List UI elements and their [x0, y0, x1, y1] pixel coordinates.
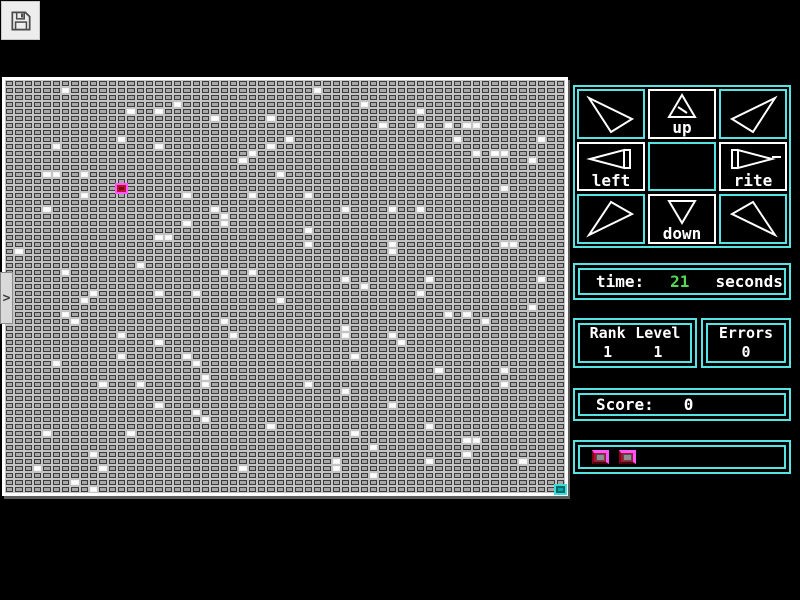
grid-cell [379, 396, 386, 401]
grid-cell [482, 333, 489, 338]
grid-cell [25, 417, 32, 422]
grid-cell [99, 487, 106, 492]
grid-cell [538, 382, 545, 387]
grid-cell [81, 137, 88, 142]
grid-cell [43, 452, 50, 457]
grid-cell [165, 284, 172, 289]
grid-cell [342, 431, 349, 436]
grid-cell [482, 179, 489, 184]
grid-cell [407, 459, 414, 464]
grid-cell [538, 424, 545, 429]
grid-cell [370, 158, 377, 163]
grid-cell [286, 298, 293, 303]
grid-cell [454, 368, 461, 373]
grid-cell [183, 473, 190, 478]
grid-cell [286, 228, 293, 233]
grid-cell [445, 382, 452, 387]
grid-cell [118, 228, 125, 233]
grid-cell [267, 424, 274, 429]
grid-cell [370, 109, 377, 114]
grid-cell [557, 389, 564, 394]
grid-cell [174, 284, 181, 289]
grid-cell [379, 466, 386, 471]
grid-cell [239, 403, 246, 408]
grid-cell [62, 438, 69, 443]
grid-cell [445, 403, 452, 408]
grid-cell [295, 473, 302, 478]
grid-cell [519, 417, 526, 422]
grid-cell [62, 354, 69, 359]
grid-cell [249, 158, 256, 163]
grid-cell [155, 361, 162, 366]
grid-cell [43, 284, 50, 289]
grid-cell [295, 228, 302, 233]
grid-cell [519, 116, 526, 121]
grid-cell [239, 158, 246, 163]
grid-cell [146, 228, 153, 233]
grid-cell [435, 375, 442, 380]
grid-cell [314, 256, 321, 261]
grid-cell [529, 172, 536, 177]
grid-cell [267, 102, 274, 107]
grid-cell [165, 242, 172, 247]
grid-cell [109, 186, 116, 191]
grid-cell [267, 249, 274, 254]
grid-cell [249, 333, 256, 338]
grid-cell [510, 172, 517, 177]
grid-cell [426, 340, 433, 345]
grid-cell [109, 284, 116, 289]
grid-cell [109, 473, 116, 478]
grid-cell [510, 473, 517, 478]
grid-cell [99, 459, 106, 464]
grid-cell [305, 270, 312, 275]
grid-cell [155, 116, 162, 121]
grid-cell [342, 340, 349, 345]
grid-cell [277, 375, 284, 380]
grid-cell [379, 193, 386, 198]
grid-cell [435, 172, 442, 177]
grid-cell [6, 459, 13, 464]
grid-cell [370, 221, 377, 226]
grid-cell [482, 284, 489, 289]
grid-cell [323, 459, 330, 464]
grid-cell [81, 151, 88, 156]
grid-cell [239, 200, 246, 205]
grid-cell [258, 431, 265, 436]
grid-cell [398, 95, 405, 100]
grid-cell [435, 151, 442, 156]
grid-cell [519, 249, 526, 254]
grid-cell [435, 186, 442, 191]
grid-cell [90, 298, 97, 303]
grid-cell [118, 249, 125, 254]
grid-cell [342, 410, 349, 415]
move-down-left-button[interactable] [577, 194, 645, 244]
grid-cell [473, 452, 480, 457]
grid-cell [81, 165, 88, 170]
grid-cell [417, 123, 424, 128]
grid-cell [482, 361, 489, 366]
save-button[interactable] [1, 1, 40, 40]
grid-cell [211, 186, 218, 191]
grid-cell [491, 340, 498, 345]
grid-cell [295, 389, 302, 394]
grid-cell [34, 382, 41, 387]
grid-cell [426, 151, 433, 156]
grid-cell [519, 144, 526, 149]
grid-cell [202, 368, 209, 373]
grid-cell [62, 102, 69, 107]
grid-cell [137, 382, 144, 387]
grid-cell [193, 368, 200, 373]
grid-cell [221, 333, 228, 338]
grid-cell [473, 424, 480, 429]
grid-cell [305, 102, 312, 107]
grid-cell [501, 144, 508, 149]
grid-cell [351, 291, 358, 296]
grid-cell [482, 382, 489, 387]
grid-cell [81, 487, 88, 492]
grid-cell [230, 263, 237, 268]
grid-cell [193, 333, 200, 338]
grid-cell [71, 389, 78, 394]
move-down-button[interactable]: down [648, 194, 716, 244]
grid-cell [361, 389, 368, 394]
grid-cell [370, 200, 377, 205]
grid-cell [165, 312, 172, 317]
grid-cell [15, 158, 22, 163]
grid-cell [547, 88, 554, 93]
grid-cell [239, 130, 246, 135]
grid-cell [417, 340, 424, 345]
grid-cell [127, 424, 134, 429]
grid-cell [342, 221, 349, 226]
grid-cell [323, 221, 330, 226]
grid-cell [258, 473, 265, 478]
grid-cell [71, 200, 78, 205]
grid-cell [286, 382, 293, 387]
grid-cell [333, 186, 340, 191]
grid-cell [249, 305, 256, 310]
grid-cell [370, 298, 377, 303]
grid-cell [53, 158, 60, 163]
grid-cell [81, 228, 88, 233]
grid-cell [435, 326, 442, 331]
grid-cell [277, 186, 284, 191]
grid-cell [519, 333, 526, 338]
grid-cell [25, 361, 32, 366]
grid-cell [6, 438, 13, 443]
grid-cell [417, 354, 424, 359]
grid-cell [193, 291, 200, 296]
grid-cell [323, 165, 330, 170]
grid-cell [211, 116, 218, 121]
grid-cell [547, 389, 554, 394]
grid-cell [165, 130, 172, 135]
grid-cell [239, 165, 246, 170]
grid-cell [445, 284, 452, 289]
grid-cell [557, 361, 564, 366]
grid-cell [557, 298, 564, 303]
grid-cell [491, 263, 498, 268]
grid-cell [258, 396, 265, 401]
game-board[interactable] [5, 80, 565, 493]
grid-cell [211, 235, 218, 240]
grid-cell [43, 445, 50, 450]
move-up-right-button[interactable] [719, 89, 787, 139]
grid-cell [25, 396, 32, 401]
grid-cell [99, 403, 106, 408]
grid-cell [538, 312, 545, 317]
grid-cell [463, 235, 470, 240]
grid-cell [183, 305, 190, 310]
grid-cell [305, 417, 312, 422]
grid-cell [445, 165, 452, 170]
grid-cell [389, 452, 396, 457]
grid-cell [53, 452, 60, 457]
grid-cell [277, 284, 284, 289]
grid-cell [211, 445, 218, 450]
grid-cell [277, 109, 284, 114]
grid-cell [62, 389, 69, 394]
grid-cell [249, 480, 256, 485]
grid-cell [6, 137, 13, 142]
panel-expand-tab[interactable]: > [0, 272, 13, 324]
grid-cell [501, 242, 508, 247]
grid-cell [323, 312, 330, 317]
grid-cell [426, 179, 433, 184]
grid-cell [43, 137, 50, 142]
grid-cell [463, 200, 470, 205]
grid-cell [249, 221, 256, 226]
grid-cell [62, 396, 69, 401]
grid-cell [99, 207, 106, 212]
grid-cell [71, 165, 78, 170]
grid-cell [249, 151, 256, 156]
grid-cell [137, 137, 144, 142]
grid-cell [482, 347, 489, 352]
grid-cell [109, 445, 116, 450]
grid-cell [286, 424, 293, 429]
grid-cell [211, 431, 218, 436]
grid-cell [342, 361, 349, 366]
grid-cell [323, 298, 330, 303]
grid-cell [426, 270, 433, 275]
grid-cell [473, 235, 480, 240]
grid-cell [510, 249, 517, 254]
grid-cell [155, 424, 162, 429]
grid-cell [333, 88, 340, 93]
grid-cell [435, 102, 442, 107]
grid-cell [426, 312, 433, 317]
grid-cell [99, 263, 106, 268]
grid-cell [361, 403, 368, 408]
grid-cell [547, 256, 554, 261]
grid-cell [351, 249, 358, 254]
grid-cell [454, 235, 461, 240]
grid-cell [174, 431, 181, 436]
grid-cell [146, 81, 153, 86]
grid-cell [6, 396, 13, 401]
grid-cell [43, 368, 50, 373]
grid-cell [286, 263, 293, 268]
grid-cell [277, 291, 284, 296]
grid-cell [99, 417, 106, 422]
grid-cell [211, 102, 218, 107]
grid-cell [398, 396, 405, 401]
move-up-left-button[interactable] [577, 89, 645, 139]
red-button-1[interactable] [592, 450, 609, 464]
grid-cell [118, 284, 125, 289]
grid-cell [529, 235, 536, 240]
grid-cell [221, 95, 228, 100]
grid-cell [351, 277, 358, 282]
grid-cell [109, 326, 116, 331]
grid-cell [71, 347, 78, 352]
grid-cell [25, 487, 32, 492]
grid-cell [230, 102, 237, 107]
grid-cell [295, 361, 302, 366]
grid-cell [482, 389, 489, 394]
grid-cell [193, 144, 200, 149]
grid-cell [193, 102, 200, 107]
grid-cell [118, 340, 125, 345]
grid-cell [417, 473, 424, 478]
grid-cell [99, 473, 106, 478]
grid-cell [15, 410, 22, 415]
grid-cell [398, 270, 405, 275]
grid-cell [174, 144, 181, 149]
grid-cell [183, 172, 190, 177]
grid-cell [398, 480, 405, 485]
grid-cell [43, 389, 50, 394]
grid-cell [314, 312, 321, 317]
grid-cell [435, 354, 442, 359]
grid-cell [426, 263, 433, 268]
grid-cell [230, 221, 237, 226]
grid-cell [426, 123, 433, 128]
grid-cell [473, 158, 480, 163]
grid-cell [90, 95, 97, 100]
grid-cell [445, 361, 452, 366]
grid-cell [305, 95, 312, 100]
grid-cell [445, 172, 452, 177]
grid-cell [211, 256, 218, 261]
move-down-right-button[interactable] [719, 194, 787, 244]
grid-cell [137, 221, 144, 226]
grid-cell [230, 200, 237, 205]
grid-cell [333, 151, 340, 156]
grid-cell [286, 109, 293, 114]
grid-cell [305, 326, 312, 331]
grid-cell [267, 312, 274, 317]
grid-cell [435, 81, 442, 86]
grid-cell [230, 354, 237, 359]
grid-cell [109, 375, 116, 380]
grid-cell [426, 228, 433, 233]
grid-cell [407, 326, 414, 331]
grid-cell [258, 333, 265, 338]
grid-cell [118, 144, 125, 149]
grid-cell [314, 487, 321, 492]
grid-cell [342, 445, 349, 450]
grid-cell [99, 200, 106, 205]
grid-cell [62, 95, 69, 100]
grid-cell [53, 151, 60, 156]
grid-cell [333, 417, 340, 422]
red-button-2[interactable] [619, 450, 636, 464]
grid-cell [342, 452, 349, 457]
grid-cell [53, 81, 60, 86]
grid-cell [202, 116, 209, 121]
grid-cell [445, 109, 452, 114]
grid-cell [118, 417, 125, 422]
grid-cell [407, 389, 414, 394]
grid-cell [118, 403, 125, 408]
grid-cell [174, 466, 181, 471]
grid-cell [482, 102, 489, 107]
grid-cell [501, 431, 508, 436]
grid-cell [239, 389, 246, 394]
grid-cell [295, 284, 302, 289]
grid-cell [211, 81, 218, 86]
grid-cell [557, 382, 564, 387]
grid-cell [174, 480, 181, 485]
grid-cell [454, 172, 461, 177]
grid-cell [155, 200, 162, 205]
grid-cell [118, 158, 125, 163]
grid-cell [510, 291, 517, 296]
move-right-button[interactable]: rite [719, 142, 787, 192]
grid-cell [445, 263, 452, 268]
grid-cell [146, 312, 153, 317]
grid-cell [239, 95, 246, 100]
grid-cell [370, 102, 377, 107]
red-button-1-knob [596, 454, 605, 461]
grid-cell [426, 186, 433, 191]
grid-cell [34, 361, 41, 366]
grid-cell [155, 123, 162, 128]
grid-cell [25, 389, 32, 394]
grid-cell [529, 487, 536, 492]
grid-cell [81, 382, 88, 387]
grid-cell [454, 186, 461, 191]
grid-cell [557, 466, 564, 471]
grid-cell [295, 158, 302, 163]
grid-cell [211, 473, 218, 478]
grid-cell [361, 291, 368, 296]
grid-cell [482, 81, 489, 86]
grid-cell [407, 130, 414, 135]
grid-cell [286, 144, 293, 149]
grid-cell [183, 179, 190, 184]
time-label: time: [596, 272, 644, 291]
move-up-button[interactable]: up [648, 89, 716, 139]
grid-cell [165, 228, 172, 233]
grid-cell [211, 452, 218, 457]
grid-cell [183, 445, 190, 450]
grid-cell [118, 200, 125, 205]
move-left-button[interactable]: left [577, 142, 645, 192]
grid-cell [267, 466, 274, 471]
grid-cell [417, 347, 424, 352]
grid-cell [221, 410, 228, 415]
grid-cell [473, 172, 480, 177]
grid-cell [426, 368, 433, 373]
grid-cell [519, 158, 526, 163]
grid-cell [118, 354, 125, 359]
